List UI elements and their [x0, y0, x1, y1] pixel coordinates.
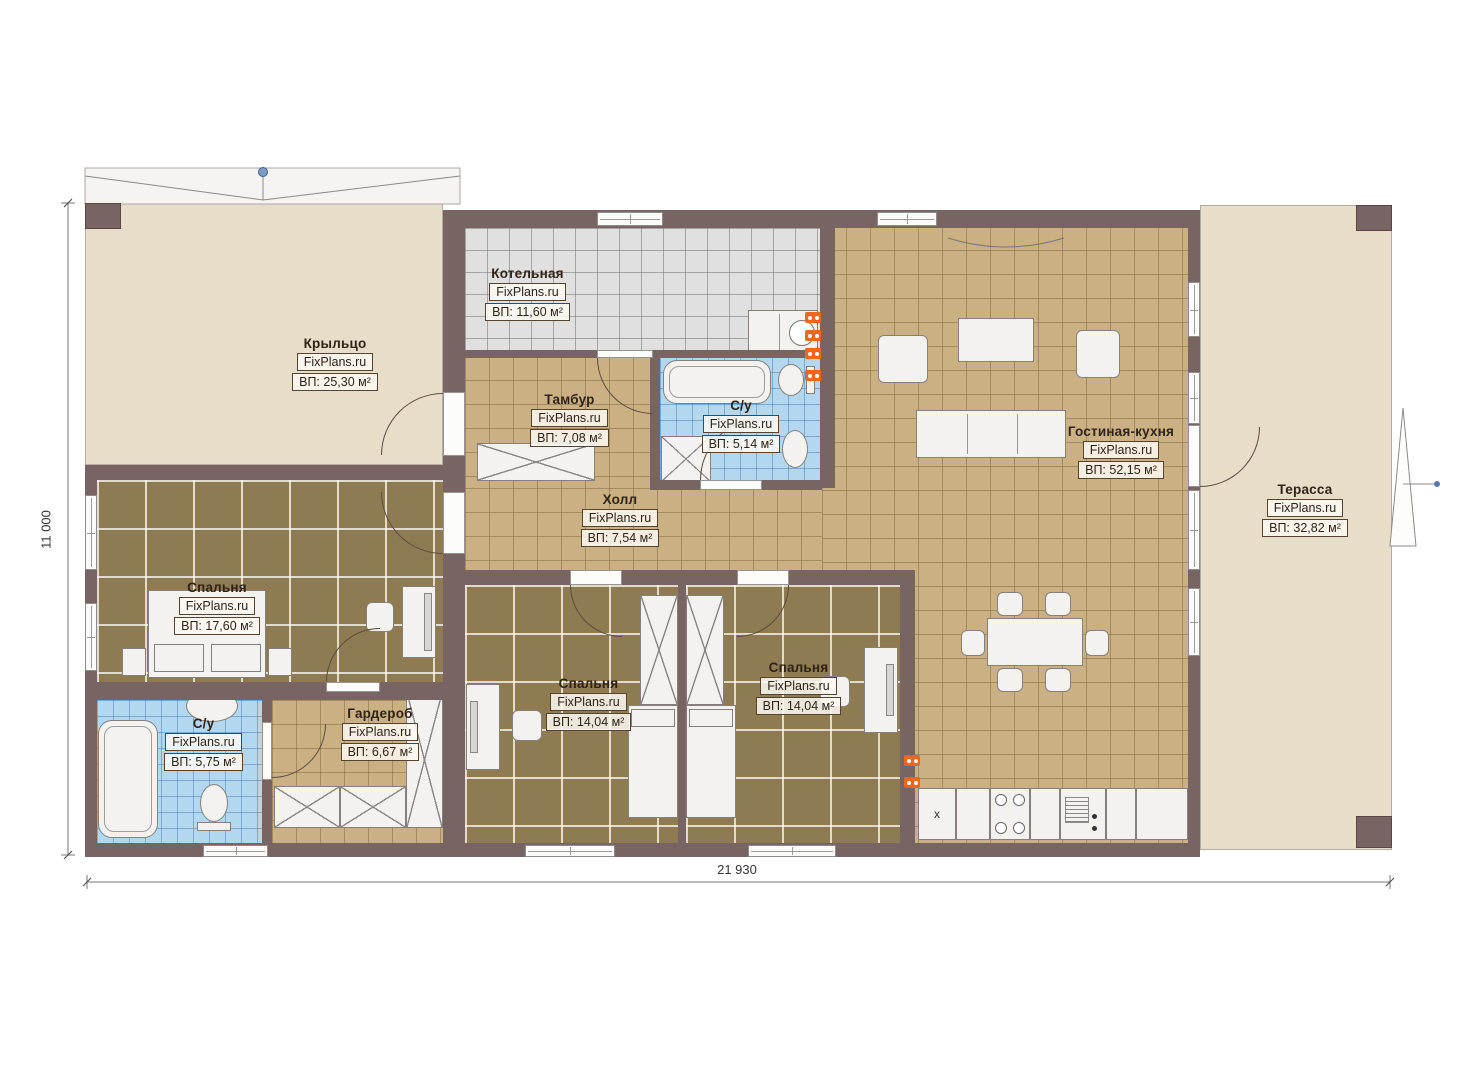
room-area: ВП: 11,60 м²	[485, 303, 570, 321]
window	[1188, 372, 1200, 424]
brand-watermark: FixPlans.ru	[550, 693, 627, 711]
toilet-tank-bottom	[197, 822, 231, 831]
brand-watermark: FixPlans.ru	[489, 283, 566, 301]
dining-chair	[1045, 668, 1071, 692]
radiator-marker	[904, 777, 920, 788]
room-name: Спальня	[736, 660, 861, 675]
door-bedroom-left	[443, 492, 465, 554]
room-area: ВП: 6,67 м²	[341, 743, 420, 761]
kitchen-sink-label: x	[934, 807, 940, 821]
room-area: ВП: 32,82 м²	[1262, 519, 1348, 537]
room-area: ВП: 14,04 м²	[756, 697, 842, 715]
brand-watermark: FixPlans.ru	[1083, 441, 1160, 459]
pillow	[211, 644, 261, 672]
nightstand	[122, 648, 146, 676]
room-area: ВП: 7,54 м²	[581, 529, 660, 547]
desk-monitor	[424, 593, 432, 651]
pillow	[689, 709, 733, 727]
wall-bedrooms-central	[678, 585, 686, 843]
faucet-dot	[1092, 814, 1097, 819]
window	[1188, 490, 1200, 570]
window	[1188, 282, 1200, 337]
room-label-vestibule: Тамбур FixPlans.ru ВП: 7,08 м²	[512, 392, 627, 447]
wardrobe-unit	[274, 786, 340, 828]
brand-watermark: FixPlans.ru	[342, 723, 419, 741]
room-area: ВП: 17,60 м²	[174, 617, 260, 635]
toilet-bottom-bath	[200, 784, 228, 822]
vestibule-cabinet	[477, 443, 595, 481]
terrace-pillar	[1356, 816, 1392, 848]
dining-chair	[1085, 630, 1109, 656]
floor-plan-canvas: x	[0, 0, 1474, 1080]
radiator-marker	[805, 312, 821, 323]
brand-watermark: FixPlans.ru	[531, 409, 608, 427]
sofa-cushion-divider	[967, 414, 968, 454]
wall-porch-bedroom	[85, 465, 443, 480]
kitchen-cabinet	[1030, 788, 1060, 840]
room-label-wardrobe: Гардероб FixPlans.ru ВП: 6,67 м²	[318, 706, 442, 761]
window	[748, 845, 836, 857]
window	[525, 845, 615, 857]
window	[1188, 588, 1200, 656]
window	[85, 603, 97, 671]
room-label-bath-bottom: С/у FixPlans.ru ВП: 5,75 м²	[146, 716, 261, 771]
sofa	[916, 410, 1066, 458]
room-name: С/у	[682, 398, 800, 413]
toilet-top-bath	[778, 364, 804, 396]
room-name: Тамбур	[512, 392, 627, 407]
door-boiler	[597, 350, 653, 358]
sink-grate	[1065, 797, 1089, 823]
room-name: Спальня	[526, 676, 651, 691]
dimension-width-label: 21 930	[637, 862, 837, 877]
porch-pillar	[85, 203, 121, 229]
radiator-marker	[904, 755, 920, 766]
brand-watermark: FixPlans.ru	[179, 597, 256, 615]
wardrobe-unit	[340, 786, 406, 828]
kitchen-cabinet	[1106, 788, 1136, 840]
room-name: С/у	[146, 716, 261, 731]
room-label-hall: Холл FixPlans.ru ВП: 7,54 м²	[560, 492, 680, 547]
stove-burner	[1013, 794, 1025, 806]
door-bath-top	[700, 480, 762, 490]
desk-monitor	[886, 664, 894, 716]
room-area: ВП: 14,04 м²	[546, 713, 632, 731]
wardrobe-unit	[686, 595, 724, 705]
faucet-dot	[1092, 826, 1097, 831]
room-label-living: Гостиная-кухня FixPlans.ru ВП: 52,15 м²	[1046, 424, 1196, 479]
room-label-bedroom-mid1: Спальня FixPlans.ru ВП: 14,04 м²	[526, 676, 651, 731]
stove-burner	[995, 822, 1007, 834]
dining-table	[987, 618, 1083, 666]
room-label-terrace: Терасса FixPlans.ru ВП: 32,82 м²	[1240, 482, 1370, 537]
dim-slash	[64, 199, 72, 207]
terrace-pillar	[1356, 205, 1392, 231]
dining-chair	[997, 668, 1023, 692]
room-area: ВП: 7,08 м²	[530, 429, 609, 447]
coffee-table	[958, 318, 1034, 362]
brand-watermark: FixPlans.ru	[1267, 499, 1344, 517]
desk-chair	[366, 602, 394, 632]
room-label-boiler: Котельная FixPlans.ru ВП: 11,60 м²	[465, 266, 590, 321]
room-name: Гардероб	[318, 706, 442, 721]
terrace-stair-marker	[1390, 408, 1416, 546]
window	[597, 212, 663, 226]
room-label-porch: Крыльцо FixPlans.ru ВП: 25,30 м²	[262, 336, 408, 391]
nightstand	[268, 648, 292, 676]
porch-roof-valley-lines	[85, 176, 460, 200]
kitchen-cabinet	[956, 788, 990, 840]
brand-watermark: FixPlans.ru	[582, 509, 659, 527]
dim-slash	[83, 878, 91, 886]
brand-watermark: FixPlans.ru	[165, 733, 242, 751]
kitchen-fridge	[1136, 788, 1188, 840]
room-name: Котельная	[465, 266, 590, 281]
window	[877, 212, 937, 226]
wall-living-left	[820, 226, 835, 488]
kitchen-sink-unit	[1060, 788, 1106, 840]
room-area: ВП: 5,75 м²	[164, 753, 243, 771]
window	[85, 495, 97, 570]
window	[203, 845, 268, 857]
brand-watermark: FixPlans.ru	[703, 415, 780, 433]
porch-roof-drain-point	[259, 168, 268, 177]
sofa-cushion-divider	[1017, 414, 1018, 454]
kitchen-stove	[990, 788, 1030, 840]
room-name: Спальня	[152, 580, 282, 595]
door-bedroom-mid1	[570, 570, 622, 585]
wall-bedroom-mid2-right	[900, 570, 915, 843]
radiator-marker	[805, 370, 821, 381]
room-name: Крыльцо	[262, 336, 408, 351]
desk-bedroom-left	[402, 586, 436, 658]
dining-chair	[997, 592, 1023, 616]
single-bed	[686, 705, 736, 818]
room-area: ВП: 25,30 м²	[292, 373, 378, 391]
dining-chair	[1045, 592, 1071, 616]
desk-monitor	[470, 701, 478, 753]
room-label-bedroom-mid2: Спальня FixPlans.ru ВП: 14,04 м²	[736, 660, 861, 715]
kitchen-cabinet-corner: x	[918, 788, 956, 840]
desk-bedroom-mid2	[864, 647, 898, 733]
desk-bedroom-mid1	[466, 684, 500, 770]
brand-watermark: FixPlans.ru	[297, 353, 374, 371]
door-bath-bottom	[262, 722, 272, 780]
stove-burner	[995, 794, 1007, 806]
room-area: ВП: 5,14 м²	[702, 435, 781, 453]
door-wardrobe	[326, 682, 380, 692]
terrace-marker-dot	[1434, 481, 1440, 487]
wall-bedroom-left-bottom	[85, 682, 443, 700]
door-entrance	[443, 392, 465, 456]
radiator-marker	[805, 330, 821, 341]
room-label-bedroom-left: Спальня FixPlans.ru ВП: 17,60 м²	[152, 580, 282, 635]
radiator-marker	[805, 348, 821, 359]
room-name: Гостиная-кухня	[1046, 424, 1196, 439]
armchair-1	[878, 335, 928, 383]
stove-burner	[1013, 822, 1025, 834]
dim-slash	[64, 851, 72, 859]
armchair-2	[1076, 330, 1120, 378]
room-area: ВП: 52,15 м²	[1078, 461, 1164, 479]
washer-divider	[779, 314, 780, 350]
dining-chair	[961, 630, 985, 656]
dim-slash	[1386, 878, 1394, 886]
room-name: Холл	[560, 492, 680, 507]
dimension-height-label: 11 000	[39, 475, 54, 585]
brand-watermark: FixPlans.ru	[760, 677, 837, 695]
room-label-bath-top: С/у FixPlans.ru ВП: 5,14 м²	[682, 398, 800, 453]
room-name: Терасса	[1240, 482, 1370, 497]
door-bedroom-mid2	[737, 570, 789, 585]
wall-hall-bedrooms	[443, 570, 915, 585]
porch-roof-outline	[85, 168, 460, 204]
pillow	[154, 644, 204, 672]
